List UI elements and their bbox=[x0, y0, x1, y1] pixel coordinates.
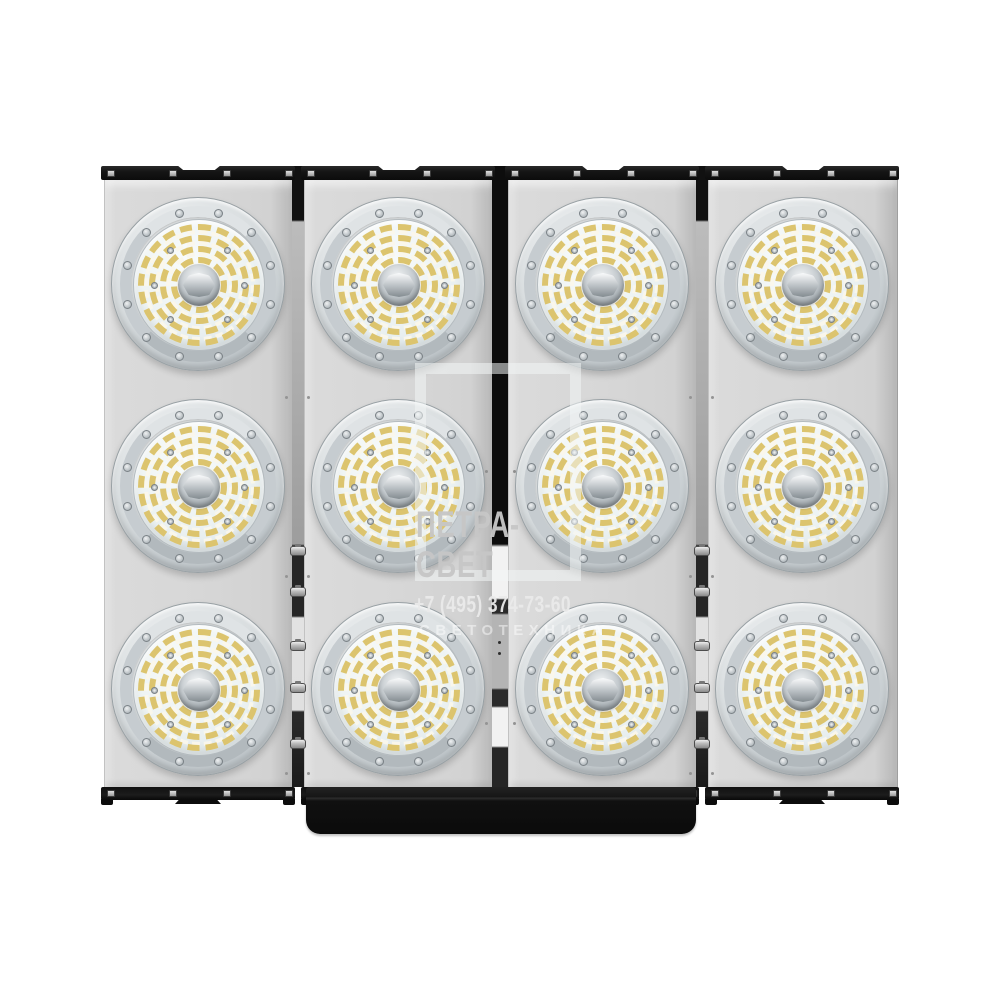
center-reflector bbox=[378, 466, 420, 508]
rim-screw bbox=[546, 333, 555, 342]
rail-screw bbox=[773, 170, 781, 177]
board-screw bbox=[755, 282, 762, 289]
rim-screw bbox=[342, 738, 351, 747]
gap-strut bbox=[292, 166, 304, 787]
rail-screw bbox=[369, 170, 377, 177]
center-strut bbox=[492, 166, 508, 787]
center-reflector bbox=[582, 264, 624, 306]
rail-screw bbox=[169, 790, 177, 797]
panel-top-rail bbox=[301, 166, 495, 180]
rim-screw bbox=[123, 502, 132, 511]
board-screw bbox=[571, 721, 578, 728]
rim-screw bbox=[247, 228, 256, 237]
board-screw bbox=[845, 282, 852, 289]
rim-screw bbox=[851, 228, 860, 237]
rim-screw bbox=[527, 300, 536, 309]
board-screw bbox=[755, 687, 762, 694]
panel-edge-screw bbox=[711, 772, 714, 775]
strut-dot bbox=[498, 641, 501, 644]
rim-screw bbox=[323, 502, 332, 511]
center-reflector bbox=[378, 669, 420, 711]
rim-screw bbox=[142, 738, 151, 747]
rail-screw bbox=[689, 170, 697, 177]
panel-edge-screw bbox=[689, 575, 692, 578]
rim-screw bbox=[618, 614, 627, 623]
rim-screw bbox=[818, 757, 827, 766]
rim-screw bbox=[746, 333, 755, 342]
led-module bbox=[111, 399, 285, 573]
rim-screw bbox=[618, 411, 627, 420]
board-screw bbox=[151, 282, 158, 289]
rim-screw bbox=[651, 430, 660, 439]
rim-screw bbox=[414, 757, 423, 766]
rail-screw bbox=[711, 790, 719, 797]
rim-screw bbox=[142, 535, 151, 544]
floodlight-fixture bbox=[0, 0, 1000, 1000]
rim-screw bbox=[818, 209, 827, 218]
panel-bottom-rail bbox=[101, 787, 295, 800]
rail-foot bbox=[887, 799, 899, 805]
rim-screw bbox=[670, 705, 679, 714]
rim-screw bbox=[651, 333, 660, 342]
rim-screw bbox=[247, 535, 256, 544]
rim-screw bbox=[851, 430, 860, 439]
board-screw bbox=[167, 247, 174, 254]
led-module bbox=[515, 602, 689, 776]
rim-screw bbox=[851, 535, 860, 544]
rail-screw bbox=[711, 170, 719, 177]
board-screw bbox=[645, 282, 652, 289]
board-screw bbox=[351, 282, 358, 289]
rail-screw bbox=[107, 790, 115, 797]
led-module bbox=[715, 602, 889, 776]
strut-bolt bbox=[694, 683, 710, 693]
rim-screw bbox=[447, 430, 456, 439]
board-screw bbox=[555, 687, 562, 694]
strut-bolt bbox=[694, 641, 710, 651]
rail-screw bbox=[827, 170, 835, 177]
board-screw bbox=[167, 316, 174, 323]
center-reflector bbox=[178, 669, 220, 711]
rail-screw bbox=[423, 170, 431, 177]
rim-screw bbox=[414, 209, 423, 218]
center-reflector bbox=[582, 466, 624, 508]
panel-edge-screw bbox=[711, 396, 714, 399]
board-screw bbox=[241, 687, 248, 694]
rim-screw bbox=[214, 352, 223, 361]
rail-screw bbox=[627, 170, 635, 177]
rail-screw bbox=[485, 170, 493, 177]
rim-screw bbox=[618, 352, 627, 361]
rail-screw bbox=[169, 170, 177, 177]
panel-edge-screw bbox=[285, 575, 288, 578]
led-module bbox=[515, 399, 689, 573]
rail-bump bbox=[175, 799, 221, 804]
rim-screw bbox=[414, 411, 423, 420]
rail-screw bbox=[773, 790, 781, 797]
led-module bbox=[715, 399, 889, 573]
panel-edge-screw bbox=[485, 722, 488, 725]
rim-screw bbox=[527, 705, 536, 714]
panel-edge-screw bbox=[689, 396, 692, 399]
strut-bolt bbox=[290, 641, 306, 651]
led-module bbox=[311, 399, 485, 573]
center-reflector bbox=[178, 466, 220, 508]
rim-screw bbox=[447, 228, 456, 237]
rail-screw bbox=[285, 790, 293, 797]
board-screw bbox=[571, 518, 578, 525]
rim-screw bbox=[323, 705, 332, 714]
rim-screw bbox=[266, 502, 275, 511]
rail-screw bbox=[285, 170, 293, 177]
rim-screw bbox=[818, 614, 827, 623]
board-screw bbox=[167, 518, 174, 525]
gap-strut bbox=[696, 166, 708, 787]
strut-bolt bbox=[290, 683, 306, 693]
led-module bbox=[515, 197, 689, 371]
rim-screw bbox=[670, 300, 679, 309]
rim-screw bbox=[818, 352, 827, 361]
board-screw bbox=[845, 484, 852, 491]
rim-screw bbox=[414, 352, 423, 361]
rim-screw bbox=[447, 333, 456, 342]
rim-screw bbox=[414, 614, 423, 623]
panel-edge-screw bbox=[307, 396, 310, 399]
board-screw bbox=[845, 687, 852, 694]
strut-bolt bbox=[290, 739, 306, 749]
rim-screw bbox=[447, 535, 456, 544]
center-reflector bbox=[582, 669, 624, 711]
rim-screw bbox=[123, 300, 132, 309]
strut-bolt bbox=[694, 587, 710, 597]
strut-dot bbox=[498, 652, 501, 655]
strut-bolt bbox=[694, 546, 710, 556]
panel-edge-screw bbox=[689, 772, 692, 775]
center-reflector bbox=[178, 264, 220, 306]
rail-screw bbox=[827, 790, 835, 797]
board-screw bbox=[771, 449, 778, 456]
board-screw bbox=[571, 449, 578, 456]
rim-screw bbox=[851, 633, 860, 642]
rail-screw bbox=[889, 170, 897, 177]
rail-notch bbox=[581, 165, 625, 170]
board-screw bbox=[241, 484, 248, 491]
product-photo: ПЕТРА- СВЕТ +7 (495) 374-73-60 СВЕТОТЕХН… bbox=[0, 0, 1000, 1000]
rim-screw bbox=[447, 738, 456, 747]
board-screw bbox=[367, 518, 374, 525]
rim-screw bbox=[651, 633, 660, 642]
rim-screw bbox=[466, 502, 475, 511]
rim-screw bbox=[870, 300, 879, 309]
rail-foot bbox=[705, 799, 717, 805]
board-screw bbox=[367, 721, 374, 728]
rim-screw bbox=[651, 535, 660, 544]
board-screw bbox=[441, 282, 448, 289]
panel-bottom-rail bbox=[705, 787, 899, 800]
rim-screw bbox=[266, 705, 275, 714]
panel-edge-screw bbox=[711, 575, 714, 578]
panel-top-rail bbox=[101, 166, 295, 180]
rim-screw bbox=[266, 300, 275, 309]
rim-screw bbox=[818, 554, 827, 563]
rail-screw bbox=[511, 170, 519, 177]
rim-screw bbox=[651, 738, 660, 747]
board-screw bbox=[167, 449, 174, 456]
board-screw bbox=[771, 721, 778, 728]
board-screw bbox=[351, 687, 358, 694]
rail-screw bbox=[223, 790, 231, 797]
board-screw bbox=[167, 721, 174, 728]
rim-screw bbox=[214, 209, 223, 218]
board-screw bbox=[645, 687, 652, 694]
board-screw bbox=[367, 652, 374, 659]
strut-bolt bbox=[290, 546, 306, 556]
rim-screw bbox=[214, 411, 223, 420]
panel-top-rail bbox=[705, 166, 899, 180]
board-screw bbox=[367, 316, 374, 323]
rim-screw bbox=[818, 411, 827, 420]
panel-top-rail bbox=[505, 166, 699, 180]
center-reflector bbox=[782, 669, 824, 711]
board-screw bbox=[351, 484, 358, 491]
rim-screw bbox=[447, 633, 456, 642]
led-module bbox=[111, 197, 285, 371]
strut-bolt bbox=[694, 739, 710, 749]
rim-screw bbox=[727, 502, 736, 511]
board-screw bbox=[755, 484, 762, 491]
rim-screw bbox=[618, 757, 627, 766]
board-screw bbox=[241, 282, 248, 289]
rim-screw bbox=[651, 228, 660, 237]
rim-screw bbox=[142, 333, 151, 342]
center-reflector bbox=[378, 264, 420, 306]
board-screw bbox=[571, 652, 578, 659]
panel-edge-screw bbox=[513, 722, 516, 725]
rim-screw bbox=[342, 535, 351, 544]
rim-screw bbox=[618, 209, 627, 218]
rim-screw bbox=[870, 705, 879, 714]
rim-screw bbox=[342, 333, 351, 342]
board-screw bbox=[151, 484, 158, 491]
rim-screw bbox=[727, 705, 736, 714]
rim-screw bbox=[214, 614, 223, 623]
panel-edge-screw bbox=[307, 772, 310, 775]
rail-screw bbox=[573, 170, 581, 177]
board-screw bbox=[367, 247, 374, 254]
board-screw bbox=[167, 652, 174, 659]
rim-screw bbox=[746, 535, 755, 544]
rim-screw bbox=[247, 633, 256, 642]
led-module bbox=[311, 197, 485, 371]
led-module bbox=[715, 197, 889, 371]
rim-screw bbox=[414, 554, 423, 563]
rim-screw bbox=[214, 757, 223, 766]
rail-foot bbox=[283, 799, 295, 805]
center-reflector bbox=[782, 264, 824, 306]
rim-screw bbox=[247, 430, 256, 439]
rim-screw bbox=[123, 705, 132, 714]
strut-bolt bbox=[290, 587, 306, 597]
rim-screw bbox=[851, 738, 860, 747]
panel-edge-screw bbox=[307, 575, 310, 578]
rail-screw bbox=[107, 170, 115, 177]
rail-notch bbox=[177, 165, 221, 170]
rim-screw bbox=[247, 333, 256, 342]
rail-screw bbox=[889, 790, 897, 797]
rim-screw bbox=[323, 300, 332, 309]
mounting-bracket bbox=[306, 787, 696, 834]
rim-screw bbox=[214, 554, 223, 563]
rail-notch bbox=[377, 165, 421, 170]
rail-bump bbox=[779, 799, 825, 804]
rim-screw bbox=[546, 738, 555, 747]
board-screw bbox=[571, 316, 578, 323]
rim-screw bbox=[546, 535, 555, 544]
panel-edge-screw bbox=[285, 396, 288, 399]
board-screw bbox=[441, 687, 448, 694]
rim-screw bbox=[466, 705, 475, 714]
panel-edge-screw bbox=[285, 772, 288, 775]
board-screw bbox=[771, 518, 778, 525]
led-module bbox=[311, 602, 485, 776]
rim-screw bbox=[466, 300, 475, 309]
rim-screw bbox=[527, 502, 536, 511]
rim-screw bbox=[746, 738, 755, 747]
board-screw bbox=[555, 282, 562, 289]
board-screw bbox=[771, 247, 778, 254]
rim-screw bbox=[870, 502, 879, 511]
rail-screw bbox=[307, 170, 315, 177]
rim-screw bbox=[851, 333, 860, 342]
board-screw bbox=[555, 484, 562, 491]
board-screw bbox=[645, 484, 652, 491]
led-module bbox=[111, 602, 285, 776]
rail-foot bbox=[101, 799, 113, 805]
rail-notch bbox=[781, 165, 825, 170]
rail-screw bbox=[223, 170, 231, 177]
center-reflector bbox=[782, 466, 824, 508]
panel-edge-screw bbox=[485, 470, 488, 473]
board-screw bbox=[771, 652, 778, 659]
rim-screw bbox=[247, 738, 256, 747]
board-screw bbox=[571, 247, 578, 254]
board-screw bbox=[367, 449, 374, 456]
rim-screw bbox=[618, 554, 627, 563]
board-screw bbox=[151, 687, 158, 694]
board-screw bbox=[441, 484, 448, 491]
rim-screw bbox=[727, 300, 736, 309]
board-screw bbox=[771, 316, 778, 323]
rim-screw bbox=[670, 502, 679, 511]
